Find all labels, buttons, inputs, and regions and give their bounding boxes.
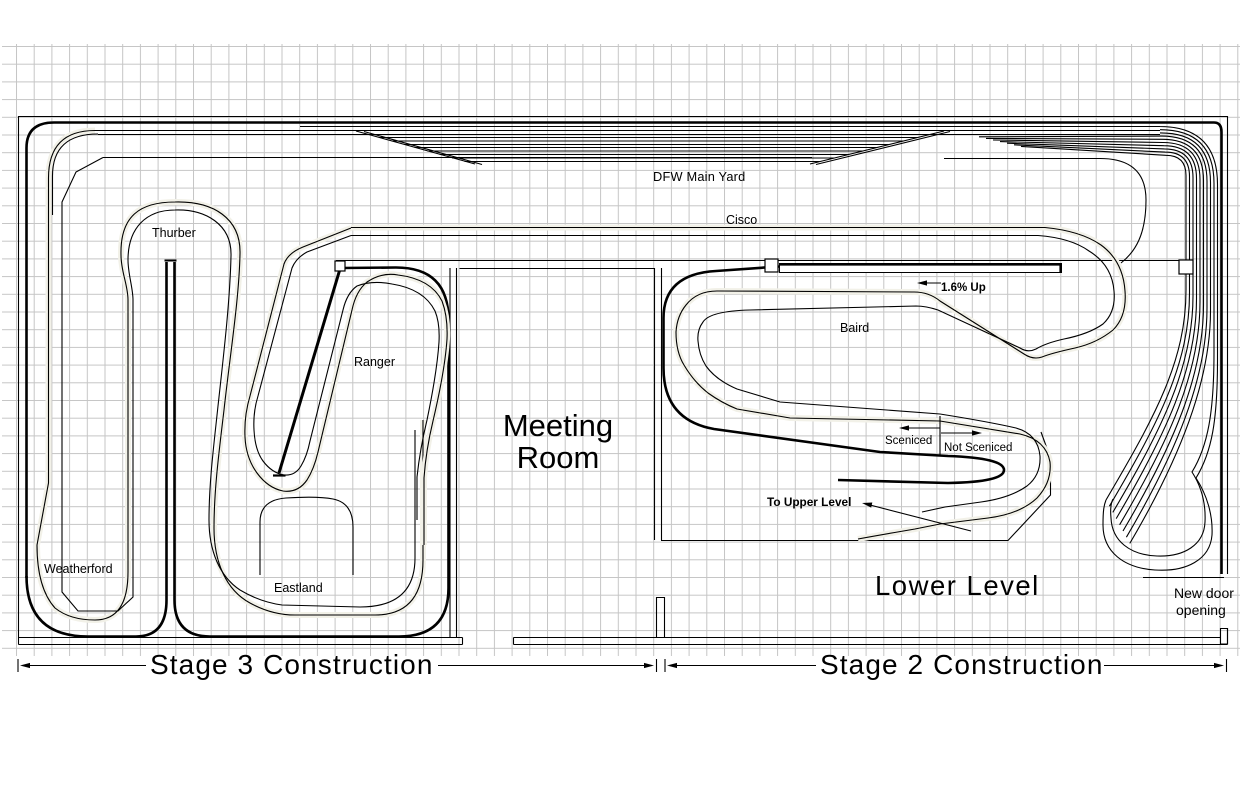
svg-text:Stage 2 Construction: Stage 2 Construction — [820, 649, 1104, 680]
svg-text:Sceniced: Sceniced — [885, 435, 932, 447]
svg-text:Ranger: Ranger — [354, 355, 395, 369]
svg-text:Weatherford: Weatherford — [44, 562, 113, 576]
svg-text:Room: Room — [517, 440, 600, 475]
svg-text:Cisco: Cisco — [726, 213, 757, 227]
svg-text:Stage 3 Construction: Stage 3 Construction — [150, 649, 434, 680]
svg-text:Baird: Baird — [840, 321, 869, 335]
svg-text:New door: New door — [1174, 585, 1234, 601]
svg-text:To Upper Level: To Upper Level — [767, 495, 851, 509]
svg-text:DFW Main Yard: DFW Main Yard — [653, 169, 745, 184]
svg-text:Thurber: Thurber — [152, 226, 196, 240]
svg-text:Not Sceniced: Not Sceniced — [944, 442, 1012, 454]
svg-text:Meeting: Meeting — [503, 408, 613, 443]
svg-text:Lower Level: Lower Level — [875, 570, 1040, 601]
svg-text:1.6% Up: 1.6% Up — [941, 282, 986, 294]
svg-text:opening: opening — [1176, 602, 1226, 618]
svg-text:Eastland: Eastland — [274, 581, 323, 595]
